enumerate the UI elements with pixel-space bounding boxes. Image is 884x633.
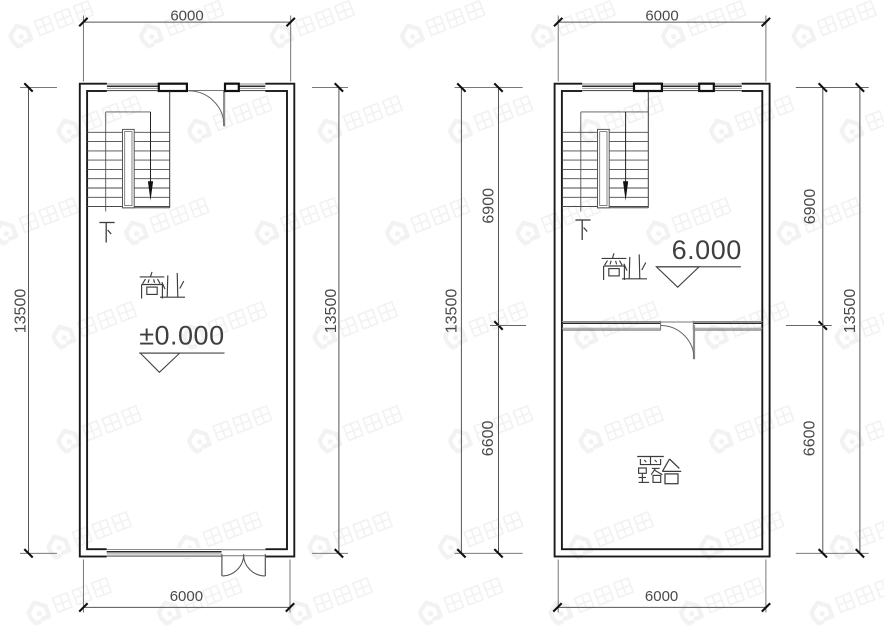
svg-text:13500: 13500 <box>12 289 29 334</box>
svg-text:6600: 6600 <box>801 421 818 457</box>
svg-text:6600: 6600 <box>480 421 497 457</box>
svg-text:6900: 6900 <box>481 188 498 224</box>
svg-text:13500: 13500 <box>443 289 460 334</box>
svg-text:6000: 6000 <box>170 8 203 25</box>
svg-text:13500: 13500 <box>323 289 340 334</box>
svg-text:6.000: 6.000 <box>672 235 742 265</box>
svg-text:13500: 13500 <box>842 289 859 334</box>
svg-text:6000: 6000 <box>645 8 678 25</box>
svg-text:6000: 6000 <box>645 588 678 605</box>
svg-text:6000: 6000 <box>170 588 203 605</box>
svg-text:6900: 6900 <box>802 189 819 225</box>
svg-text:±0.000: ±0.000 <box>139 321 224 351</box>
